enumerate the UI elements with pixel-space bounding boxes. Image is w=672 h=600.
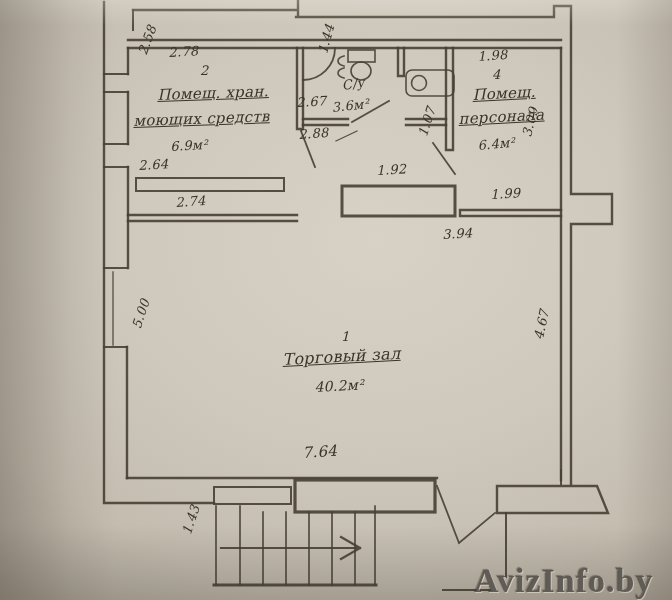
radiator-icon [338,56,344,78]
room-area-hall: 40.2м² [314,377,364,394]
toilet-tank [348,50,375,62]
stairs-direction-arrow [221,537,360,559]
room-number-staff: 4 [492,68,501,81]
sink-basin [412,76,427,91]
floorplan-photo: 2.78 2.58 2 Помещ. хран. моющих средств … [0,0,672,600]
room-name-storage-1: Помещ. хран. [157,84,269,103]
stoop [295,480,435,512]
room-area-storage: 6.9м² [170,138,208,153]
dim-storage-width: 2.78 [168,44,199,59]
ramp [497,486,608,513]
room-name-staff-1: Помещ. [472,85,536,103]
room-number-hall: 1 [341,330,350,343]
dim-wc-width: 2.67 [296,94,327,109]
dim-counter-width: 1.92 [376,162,407,177]
dim-staff-width: 1.98 [477,48,508,63]
dim-staff-bottom: 1.99 [490,186,521,201]
watermark-text: AvizInfo.by [474,562,653,600]
dim-wc-wall: 2.88 [298,126,329,141]
dim-hall-width: 7.64 [302,444,338,461]
dim-storage-bottom: 2.74 [175,194,206,209]
room-name-wc: С/у [341,76,365,92]
floorplan-drawing [0,0,672,600]
dim-storage-counter: 2.64 [138,157,169,172]
room-area-wc: 3.6м² [331,97,370,114]
storage-shelf [136,178,284,191]
sales-counter [342,186,455,216]
threshold [214,487,291,504]
room-number-storage: 2 [200,64,209,77]
dim-leader-line [336,131,357,141]
stair-treads [216,506,375,585]
dim-mid-width: 3.94 [442,226,473,241]
room-area-staff: 6.4м² [477,136,515,152]
